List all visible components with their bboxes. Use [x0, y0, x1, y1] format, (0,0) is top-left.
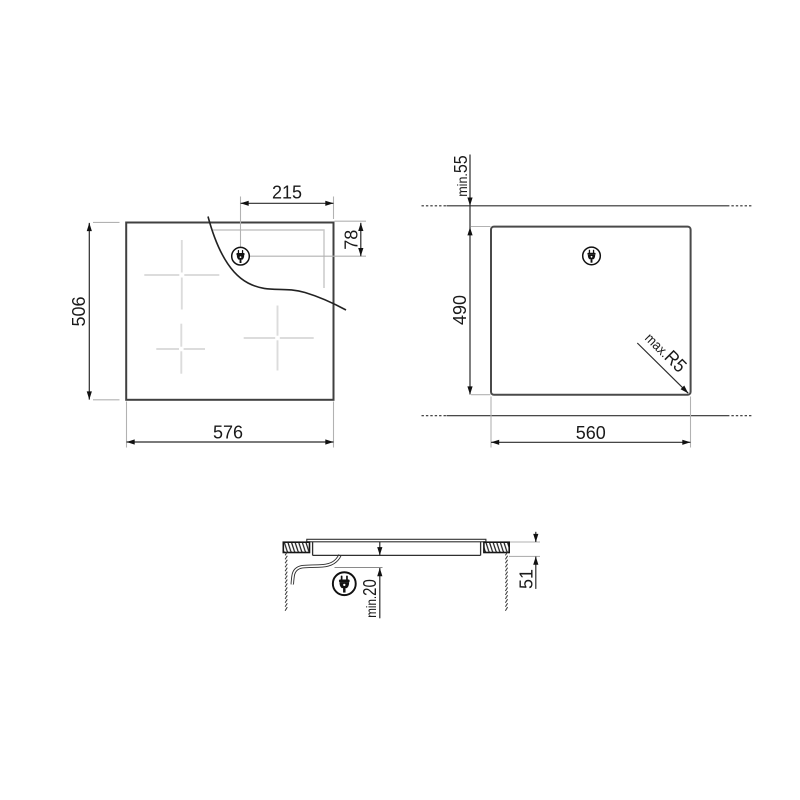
svg-text:78: 78	[342, 230, 362, 250]
svg-text:560: 560	[576, 423, 606, 443]
svg-text:490: 490	[450, 295, 470, 325]
svg-text:215: 215	[272, 182, 302, 202]
svg-text:min.20: min.20	[360, 579, 380, 618]
svg-text:min.55: min.55	[451, 155, 471, 197]
svg-text:max.R5: max.R5	[641, 328, 690, 377]
svg-text:506: 506	[69, 296, 89, 326]
svg-text:576: 576	[213, 423, 243, 443]
svg-text:51: 51	[517, 569, 537, 589]
